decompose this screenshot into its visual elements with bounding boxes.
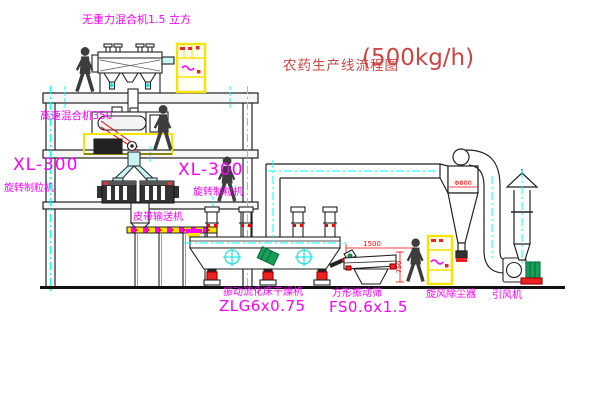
sieve-width-dimension: 1500 [363,240,381,248]
label-cyclone-name: 旋风除尘器 [426,290,476,300]
square-sieve: 1500 750 [344,240,414,284]
person-top-floor [75,47,94,92]
label-granulator-left-name: 旋转制粒机 [4,184,54,194]
control-cabinet-bottom [428,236,452,284]
label-belt-conveyor: 皮带输送机 [133,213,183,223]
label-high-speed-mixer: 高速混合机350 [40,111,113,122]
diagram-canvas: Φ800 1500 750 [0,0,600,403]
label-granulator-right-model: XL-300 [178,162,243,179]
label-granulator-right-name: 旋转制粒机 [193,188,243,198]
label-fan-name: 引风机 [492,291,522,301]
fan-motor-icon [526,262,540,278]
label-gravity-mixer: 无重力混合机1.5 立方 [82,14,191,25]
label-dryer-model: ZLG6x0.75 [219,299,306,314]
exhaust-stack [507,169,537,264]
person-near-sieve [406,239,425,282]
label-sieve-model: FS0.6x1.5 [329,300,408,315]
sieve-height-dimension: 750 [395,261,403,273]
granulator-left [97,181,136,203]
diagram-title-capacity: (500kg/h) [362,45,474,71]
label-granulator-left-model: XL-300 [13,157,78,174]
cyclone-diameter-dimension: Φ800 [454,179,472,187]
granulator-right [140,181,179,203]
control-cabinet-top [177,44,205,92]
